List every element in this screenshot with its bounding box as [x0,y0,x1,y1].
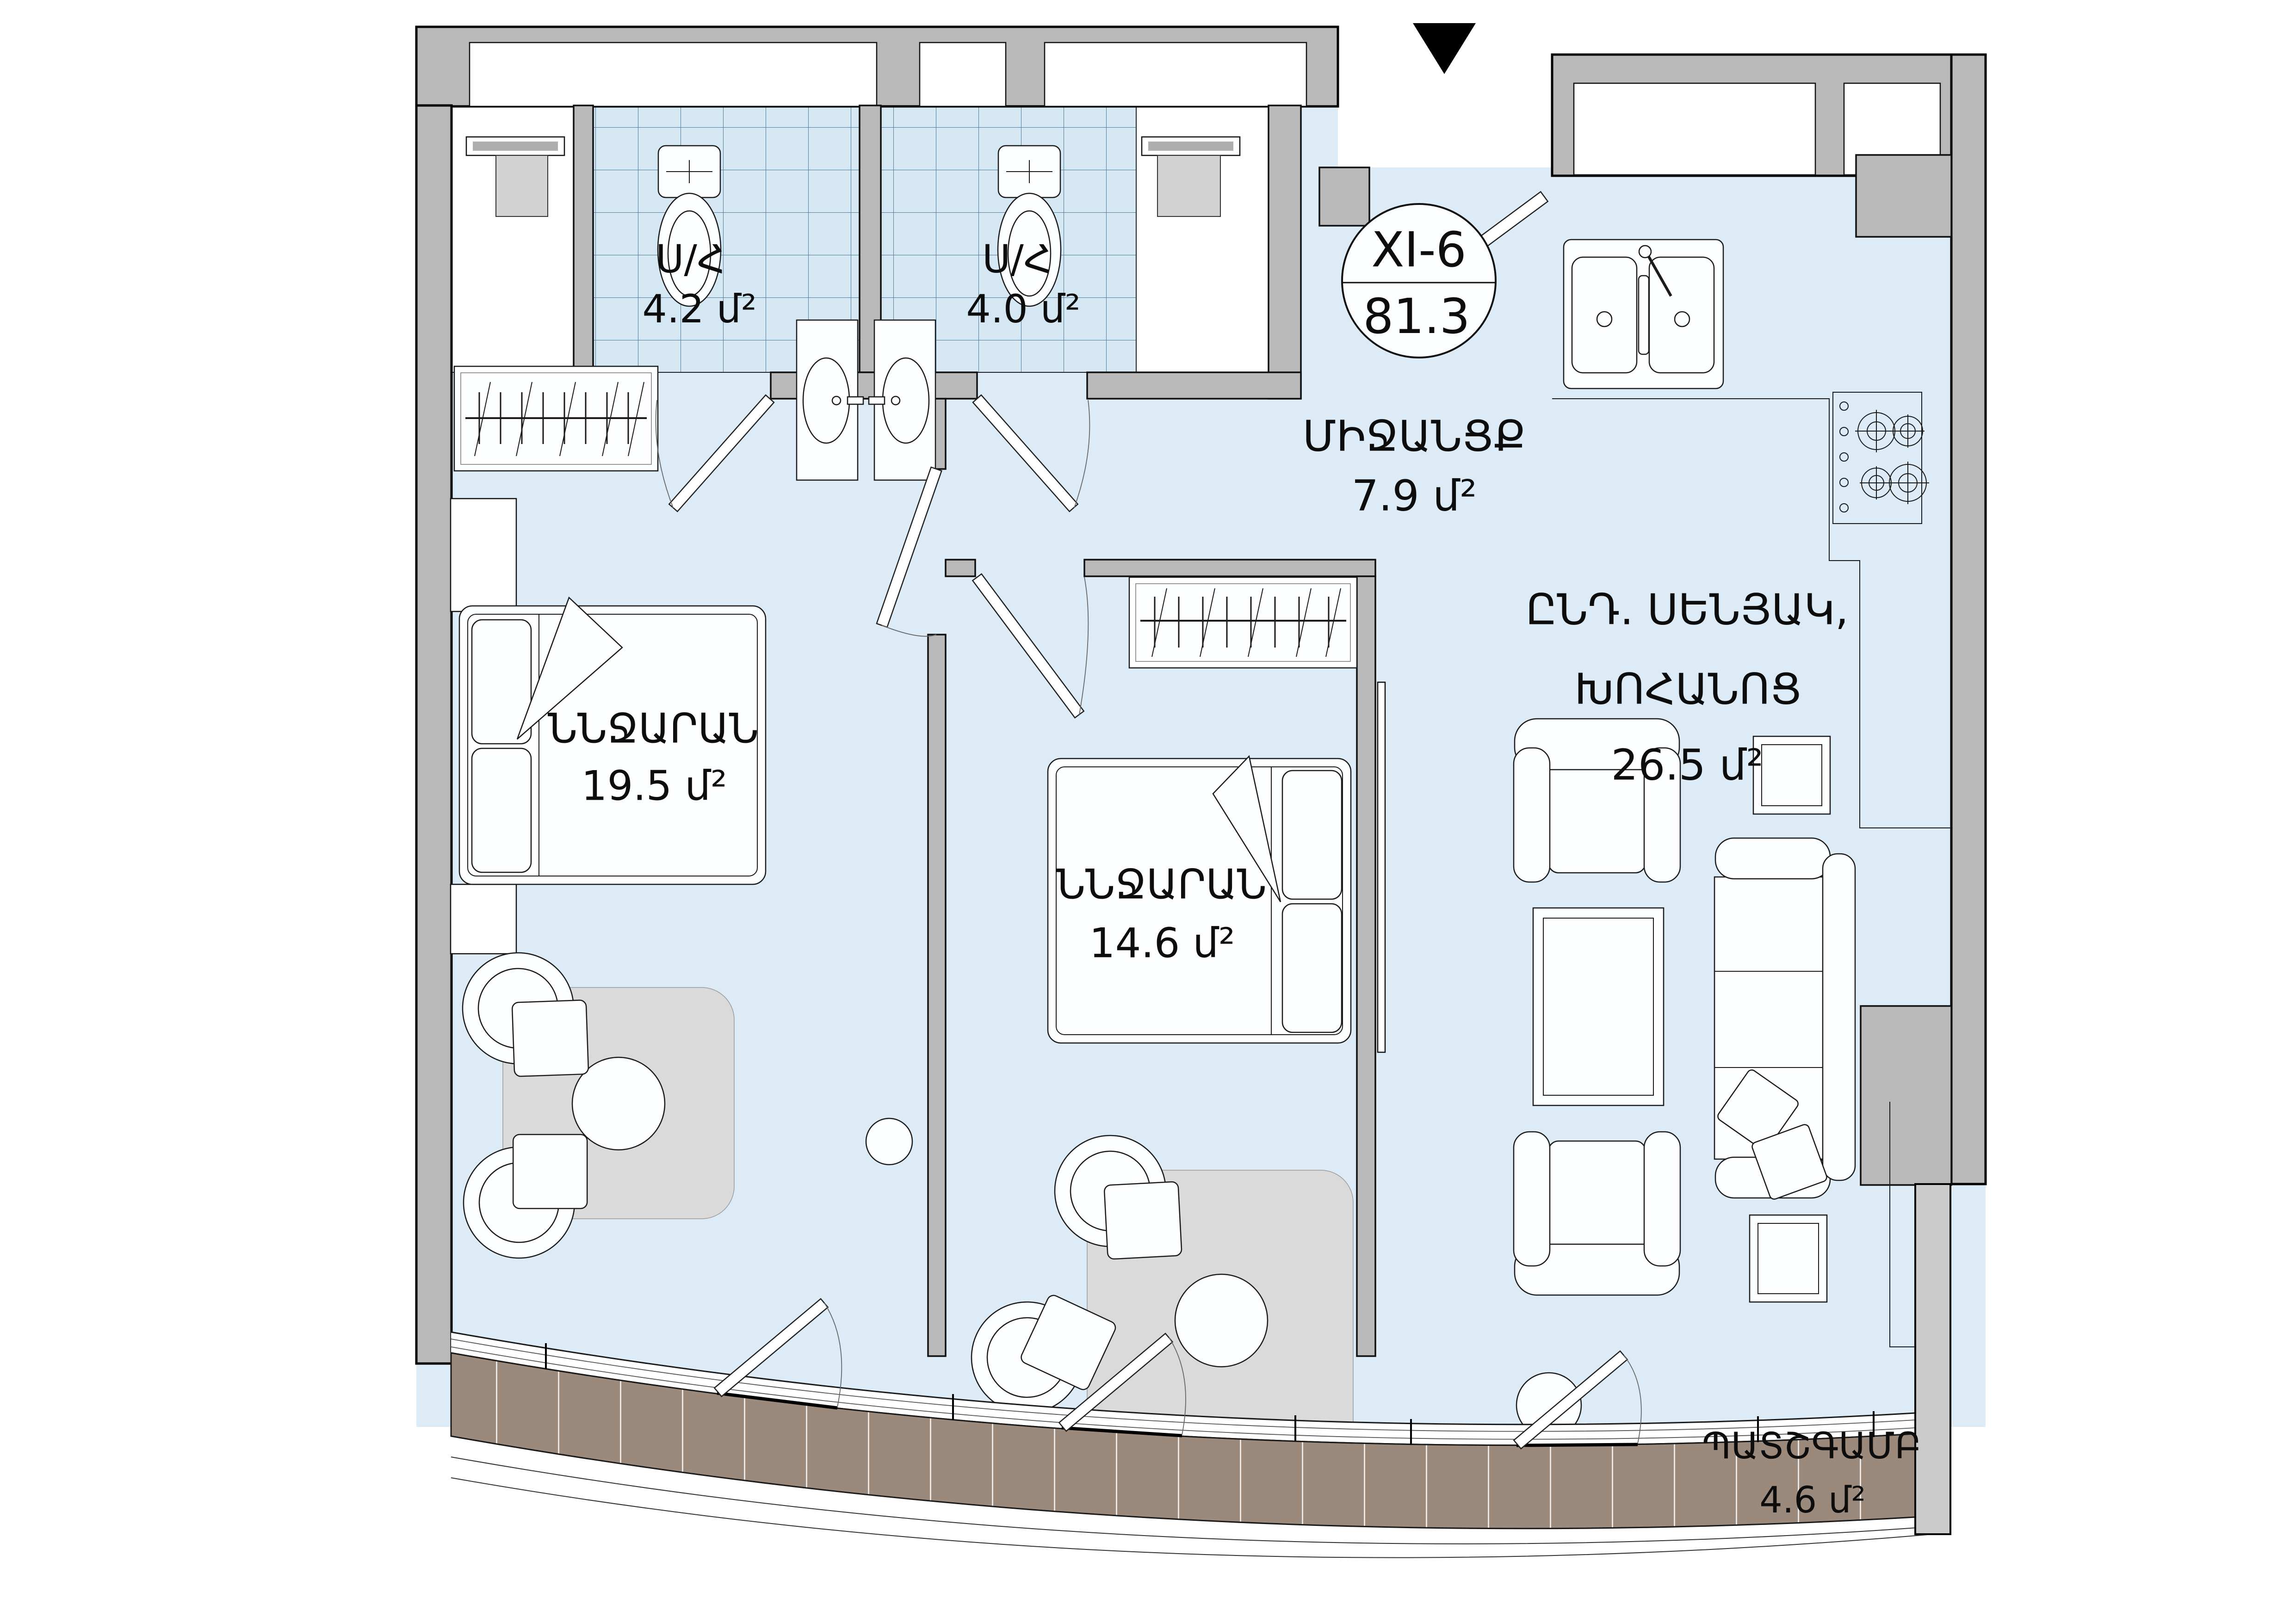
coffee-table-icon [1533,908,1664,1105]
side-table-2-icon [1750,1215,1827,1302]
bedroom2-area: 14.6 մ² [1089,921,1235,966]
bedroom2-name: ՆՆՋԱՐԱՆ [1056,863,1267,907]
hallway-name: ՄԻՋԱՆՑՔ [1303,413,1526,459]
bedroom1-name: ՆՆՋԱՐԱՆ [548,707,759,752]
kitchen-sink-icon [1564,240,1723,389]
balcony-side-wall [1915,1184,1950,1534]
badge-area-label: 81.3 [1363,290,1470,343]
living-name-line1: ԸՆԴ. ՍԵՆՅԱԿ, [1526,586,1849,633]
bedroom1-area: 19.5 մ² [582,764,727,809]
hallway-area: 7.9 մ² [1352,472,1477,519]
sofa-icon [1714,838,1855,1200]
bathroom1-area: 4.2 մ² [642,288,756,330]
bathroom2-name: Ս/Հ [982,238,1052,280]
toilet-2-icon [998,146,1061,306]
living-name-line2: ԽՈՀԱՆՈՑ [1574,666,1801,712]
balcony-name: ՊԱՏՇԳԱՄԲ [1702,1427,1921,1467]
side-table-1-icon [1753,736,1830,814]
stool-icon [866,1118,912,1165]
window-sill-table-1 [451,499,516,611]
bathroom-sink-1-icon [797,320,863,480]
bathroom2-area: 4.0 մ² [966,288,1080,330]
window-sill-table-2 [451,884,516,954]
badge-unit-label: XI-6 [1371,223,1467,276]
floor-plan: XI-6 81.3 Ս/Հ 4.2 մ² Ս/Հ 4.0 մ² ՄԻՋԱՆՑՔ … [0,0,2296,1623]
sliding-panel [1378,682,1385,1052]
bathroom1-name: Ս/Հ [656,238,725,280]
wardrobe-1-icon [454,366,658,471]
floor-plan-drawing [0,0,2296,1623]
balcony-area: 4.6 մ² [1759,1481,1866,1521]
bathroom-sink-2-icon [869,320,935,480]
armchair-2-icon [1514,1132,1680,1295]
living-area: 26.5 մ² [1611,741,1763,788]
entrance-marker-icon [1413,23,1476,74]
wardrobe-2-icon [1129,577,1357,668]
toilet-1-icon [658,146,721,306]
